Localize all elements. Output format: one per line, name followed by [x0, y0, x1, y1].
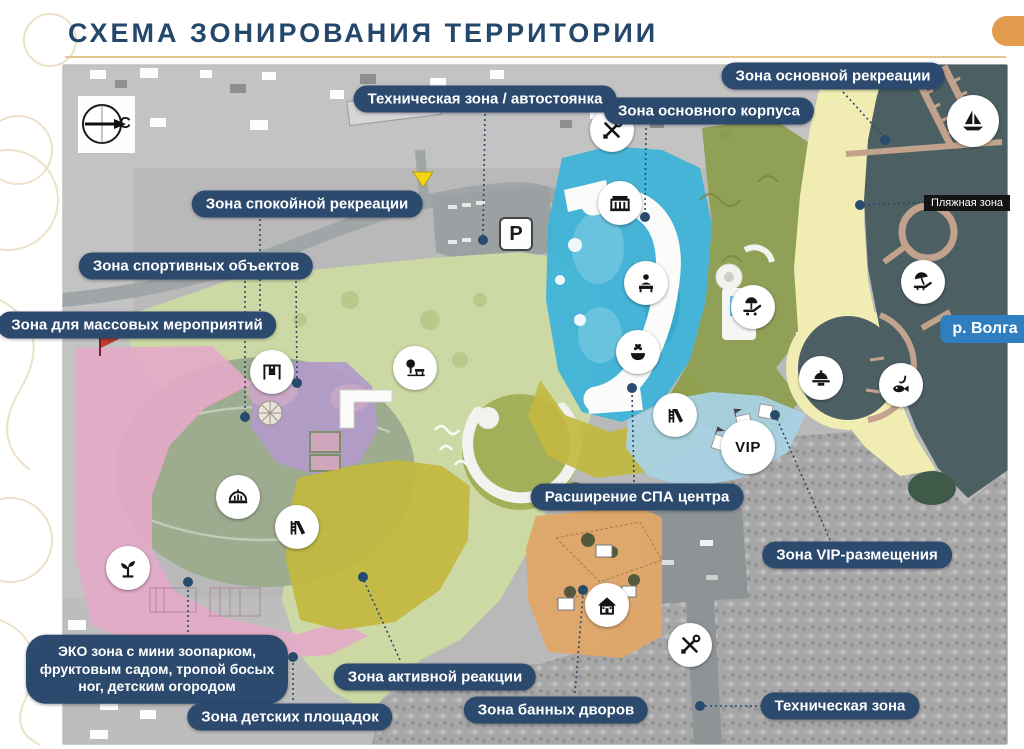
beach-icon — [901, 260, 945, 304]
label-main-building: Зона основного корпуса — [604, 98, 814, 125]
pond — [908, 471, 956, 505]
reception-icon — [624, 261, 668, 305]
page-title: СХЕМА ЗОНИРОВАНИЯ ТЕРРИТОРИИ — [68, 18, 658, 49]
swing-icon — [250, 350, 294, 394]
sailboat-icon — [947, 95, 999, 147]
house-icon — [585, 583, 629, 627]
label-active-zone: Зона активной реакции — [334, 664, 536, 691]
compass-north-label: С — [119, 115, 131, 133]
corner-tab — [992, 16, 1024, 46]
zone-banya — [526, 506, 662, 658]
label-tech-zone: Техническая зона — [761, 693, 920, 720]
spa-icon — [616, 330, 660, 374]
tree-bench-icon — [393, 346, 437, 390]
arena-icon — [216, 475, 260, 519]
slide-icon — [275, 505, 319, 549]
parking-icon: P — [499, 217, 533, 251]
page: СХЕМА ЗОНИРОВАНИЯ ТЕРРИТОРИИ С P VIP р. … — [0, 0, 1024, 749]
label-children-zone: Зона детских площадок — [187, 704, 392, 731]
label-tech-parking: Техническая зона / автостоянка — [354, 86, 617, 113]
label-eco-zone: ЭКО зона с мини зоопарком, фруктовым сад… — [26, 635, 288, 704]
label-vip-zone: Зона VIP-размещения — [762, 542, 952, 569]
label-main-recreation: Зона основной рекреации — [721, 63, 944, 90]
label-mass-events: Зона для массовых мероприятий — [0, 312, 277, 339]
label-spa-expansion: Расширение СПА центра — [531, 484, 744, 511]
title-underline — [65, 56, 1006, 58]
fishing-icon — [879, 363, 923, 407]
tools-icon — [668, 623, 712, 667]
sprout-icon — [106, 546, 150, 590]
label-banya-zone: Зона банных дворов — [464, 697, 648, 724]
beach-zone-label: Пляжная зона — [924, 195, 1010, 211]
slide-icon — [653, 393, 697, 437]
vip-badge: VIP — [721, 420, 775, 474]
label-quiet-recreation: Зона спокойной рекреации — [192, 191, 423, 218]
label-sports: Зона спортивных объектов — [79, 253, 313, 280]
pool-lounge-icon — [731, 285, 775, 329]
river-label: р. Волга — [940, 315, 1024, 343]
room-service-icon — [799, 356, 843, 400]
building-icon — [598, 181, 642, 225]
